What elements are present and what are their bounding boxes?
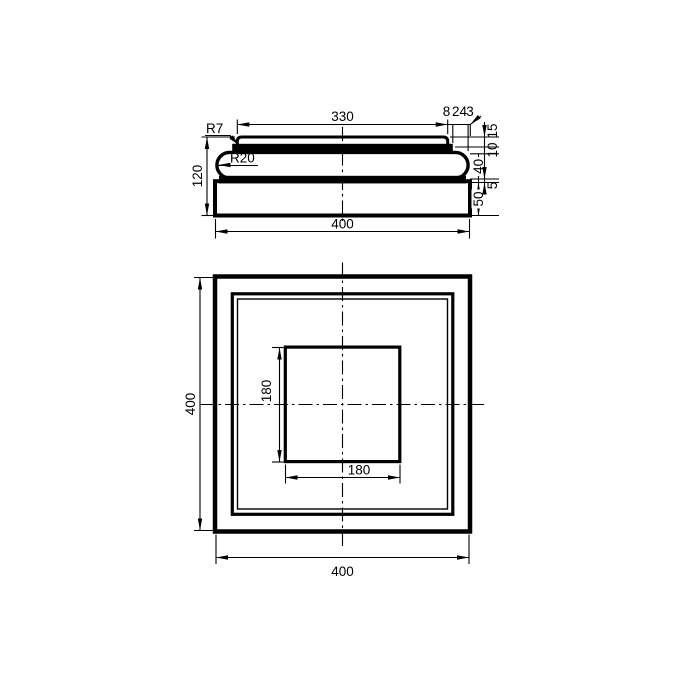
dim-5-label: 5 <box>485 182 500 190</box>
dim-400-side: 400 <box>216 217 470 239</box>
dim-24-label: 24 <box>452 104 468 119</box>
radius-r7: R7 <box>205 121 240 146</box>
arrowhead <box>436 122 448 126</box>
dim-3-label: 3 <box>466 104 474 119</box>
dim-180-vertical-label: 180 <box>259 380 274 403</box>
dim-400-plan-bottom-label: 400 <box>331 564 354 579</box>
arrowhead <box>205 204 209 216</box>
plan-view: 400 400 180 180 <box>183 263 485 580</box>
arrowhead <box>458 229 470 233</box>
technical-drawing: 330 8 24 3 <box>0 0 686 686</box>
arrowhead <box>216 229 228 233</box>
dim-8-label: 8 <box>443 104 451 119</box>
dim-40-50: 40 50 <box>471 154 486 216</box>
dim-180-horizontal-label: 180 <box>348 463 371 478</box>
dim-330-label: 330 <box>331 109 354 124</box>
radius-r20-label: R20 <box>230 151 255 166</box>
arrowhead <box>198 278 202 290</box>
drawing-canvas: 330 8 24 3 <box>0 0 686 686</box>
dim-330: 330 <box>237 109 470 134</box>
radius-r7-label: R7 <box>206 121 223 136</box>
dim-15-10-5: 15 10 5 <box>482 122 500 195</box>
arrowhead <box>205 137 209 149</box>
arrowhead <box>457 555 469 559</box>
dim-400-side-label: 400 <box>331 217 354 232</box>
side-view: 330 8 24 3 <box>190 104 500 239</box>
dim-120-label: 120 <box>190 165 205 188</box>
dim-10-label: 10 <box>485 142 500 157</box>
dim-400-plan-left-label: 400 <box>183 393 198 416</box>
dim-15-label: 15 <box>485 123 500 138</box>
arrowhead <box>237 122 249 126</box>
arrowhead <box>198 519 202 531</box>
arrowhead <box>216 555 228 559</box>
